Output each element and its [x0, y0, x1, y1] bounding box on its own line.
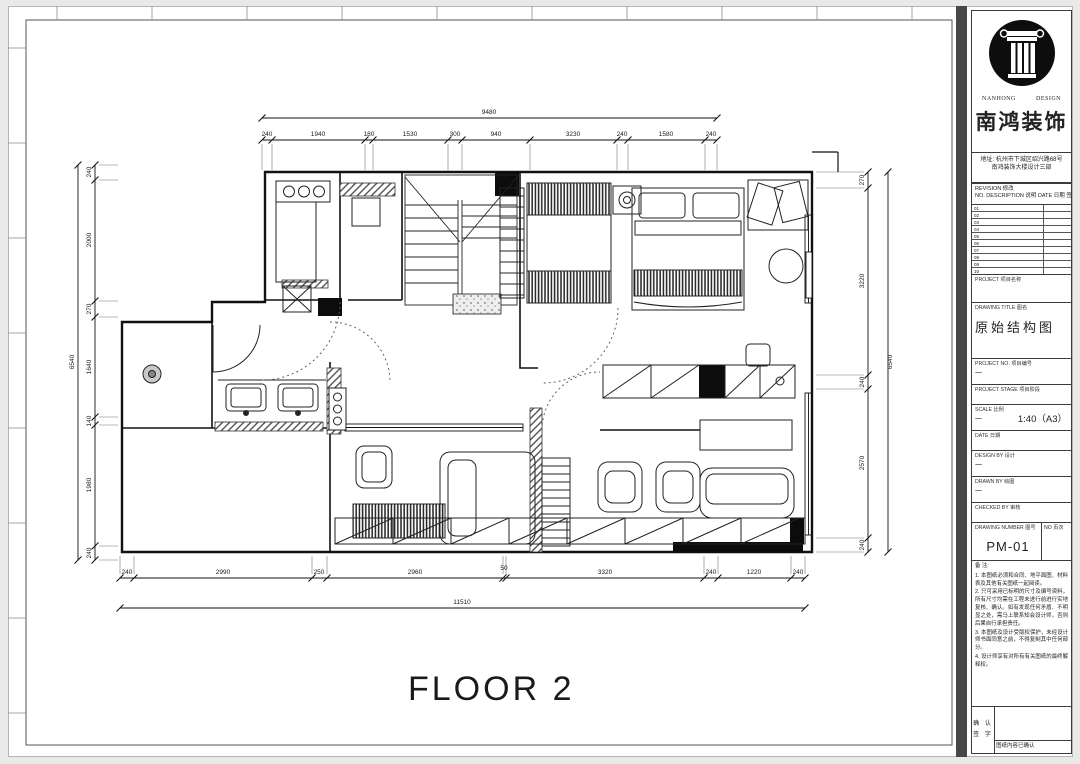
svg-text:3230: 3230	[566, 131, 581, 138]
cabinet	[700, 420, 792, 450]
svg-text:240: 240	[706, 131, 717, 138]
svg-text:270: 270	[859, 174, 866, 185]
signoff-box: 确 认 签 字 图纸内容已确认	[971, 706, 1072, 754]
brand-en-right: DESIGN	[1036, 96, 1061, 104]
bathroom	[143, 325, 346, 430]
structural-columns	[318, 172, 804, 553]
dim-bottom-overall: 11510	[453, 599, 471, 606]
svg-text:240: 240	[706, 569, 717, 576]
revision-row: 05	[972, 233, 1071, 240]
drawing-sheet-page: { "title_block": { "logo": { "en_left": …	[0, 0, 1080, 764]
revision-row: 07	[972, 247, 1071, 254]
dim-left-overall: 6540	[69, 354, 76, 369]
stove	[276, 181, 330, 202]
revision-row: 02	[972, 212, 1071, 219]
sink	[226, 384, 266, 416]
small-room-table	[352, 198, 380, 226]
svg-text:2960: 2960	[408, 569, 423, 576]
drawing-number-field: DRAWING NUMBER 图号 PM-01 NO 页次	[971, 522, 1072, 560]
drawing-number-value: PM-01	[975, 539, 1041, 555]
svg-text:2990: 2990	[216, 569, 231, 576]
pillow	[639, 193, 685, 218]
title-block: NANHONG DESIGN 南鸿装饰 地址: 杭州市下城区绍兴路68号 南鸿装…	[971, 10, 1072, 754]
address-box: 地址: 杭州市下城区绍兴路68号 南鸿装饰大楼设计三部	[971, 152, 1072, 182]
door-swing	[213, 325, 260, 372]
floor-plan-svg: 9480 240 1940 180 1530 300 940 3230 240 …	[0, 0, 1080, 764]
titleblock-divider-bar	[956, 6, 967, 757]
kitchen	[276, 181, 380, 312]
blanket	[634, 270, 742, 296]
note-item: 4. 设计师享有对所有有关图纸的最终解释权。	[975, 654, 1068, 670]
scale-field: SCALE 比例 一 1:40（A3）	[971, 404, 1072, 430]
signoff-label: 确 认 签 字	[972, 707, 995, 753]
brand-cn: 南鸿装饰	[975, 109, 1068, 135]
revision-header-line1: REVISION 修改	[975, 186, 1068, 193]
svg-text:2000: 2000	[86, 232, 93, 247]
svg-text:270: 270	[86, 303, 93, 314]
notes-title: 备 注:	[975, 563, 1068, 571]
revision-row: 04	[972, 226, 1071, 233]
design-by-field: DESIGN BY 设计 一	[971, 450, 1072, 476]
pillow	[693, 193, 739, 218]
nightstand	[746, 344, 770, 366]
company-logo-box: NANHONG DESIGN 南鸿装饰	[971, 10, 1072, 152]
radiator-bench	[353, 504, 445, 538]
chaise-lounge	[747, 180, 808, 230]
svg-text:940: 940	[491, 131, 502, 138]
day-bed	[440, 452, 535, 544]
scale-value: 1:40（A3）	[1018, 414, 1067, 426]
signoff-confirmed-text: 图纸内容已确认	[994, 740, 1071, 753]
dimension-lines	[78, 118, 888, 608]
project-stage-field: PROJECT STAGE 项目阶段	[971, 384, 1072, 404]
windows	[345, 215, 812, 535]
revision-row: 01	[972, 205, 1071, 212]
kitchen-counter	[276, 202, 316, 282]
pipe-fixture	[329, 388, 346, 430]
dim-ticks	[75, 115, 892, 612]
svg-text:240: 240	[859, 539, 866, 550]
outer-walls	[122, 152, 838, 552]
double-bed	[632, 188, 744, 310]
shaft-x-box	[283, 286, 311, 312]
bedroom-2	[353, 446, 535, 544]
note-item: 3. 本图纸及设计受版权保护，未经设计师书面同意之前，不得复制其中任何部分。	[975, 630, 1068, 653]
svg-text:1940: 1940	[311, 131, 326, 138]
date-field: DATE 日期	[971, 430, 1072, 450]
round-table	[769, 249, 803, 283]
sofa	[700, 468, 794, 518]
brand-en-left: NANHONG	[982, 96, 1016, 104]
address-line1: 地址: 杭州市下城区绍兴路68号	[975, 157, 1068, 165]
svg-text:240: 240	[617, 131, 628, 138]
notes-box: 备 注: 1. 本图纸必须和合同、地平面图、材料表及其他有关图纸一起阅读。 2.…	[971, 560, 1072, 706]
svg-text:1980: 1980	[86, 477, 93, 492]
concrete-pier	[453, 294, 501, 314]
revision-header-line2: NO. DESCRIPTION 说明 DATE 日期 签署	[975, 193, 1068, 200]
svg-text:300: 300	[450, 131, 461, 138]
svg-text:2570: 2570	[859, 455, 866, 470]
dim-right-overall: 6540	[887, 354, 894, 369]
bedroom-1	[500, 180, 808, 398]
svg-text:240: 240	[793, 569, 804, 576]
note-item: 1. 本图纸必须和合同、地平面图、材料表及其他有关图纸一起阅读。	[975, 573, 1068, 589]
dim-top-overall: 9480	[482, 109, 497, 116]
svg-text:240: 240	[86, 166, 93, 177]
revision-row: 03	[972, 219, 1071, 226]
svg-text:3220: 3220	[859, 273, 866, 288]
svg-text:180: 180	[364, 131, 375, 138]
checked-by-field: CHECKED BY 审核	[971, 502, 1072, 522]
project-no-field: PROJECT NO. 项目编号 一	[971, 358, 1072, 384]
note-item: 2. 只可采用已标明的尺寸及编号资料，所有尺寸均需在工程未进行前进行实地复核、确…	[975, 589, 1068, 628]
revision-row: 06	[972, 240, 1071, 247]
interior-walls	[122, 172, 700, 552]
svg-text:1580: 1580	[659, 131, 674, 138]
svg-text:1640: 1640	[86, 359, 93, 374]
svg-text:140: 140	[86, 415, 93, 426]
sink	[278, 384, 318, 416]
svg-text:250: 250	[314, 569, 325, 576]
floor-label: FLOOR 2	[408, 670, 574, 708]
armchair	[656, 462, 700, 512]
page-no-cell: NO 页次	[1041, 523, 1071, 560]
slatted-bed	[527, 183, 611, 303]
svg-text:1530: 1530	[403, 131, 418, 138]
drawn-by-field: DRAWN BY 绘图 一	[971, 476, 1072, 502]
desk-chair	[356, 446, 392, 488]
project-field: PROJECT 项目名称	[971, 274, 1072, 302]
revision-table: 01 02 03 04 05 06 07 08 09 10	[971, 204, 1072, 274]
revision-header: REVISION 修改 NO. DESCRIPTION 说明 DATE 日期 签…	[971, 182, 1072, 204]
svg-text:1220: 1220	[747, 569, 762, 576]
armchair	[598, 462, 642, 512]
svg-text:240: 240	[86, 547, 93, 558]
svg-text:240: 240	[859, 376, 866, 387]
revision-row: 09	[972, 261, 1071, 268]
ceiling-fixture	[613, 186, 641, 214]
address-line2: 南鸿装饰大楼设计三部	[975, 165, 1068, 173]
shoe-cabinet	[542, 458, 570, 546]
drawing-title-field: DRAWING TITLE 图名 原始结构图	[971, 302, 1072, 358]
svg-text:240: 240	[262, 131, 273, 138]
svg-text:3320: 3320	[598, 569, 613, 576]
svg-text:240: 240	[122, 569, 133, 576]
revision-row: 08	[972, 254, 1071, 261]
svg-text:50: 50	[500, 565, 508, 572]
drawing-title-value: 原始结构图	[975, 320, 1068, 336]
column-logo-icon	[984, 17, 1060, 89]
